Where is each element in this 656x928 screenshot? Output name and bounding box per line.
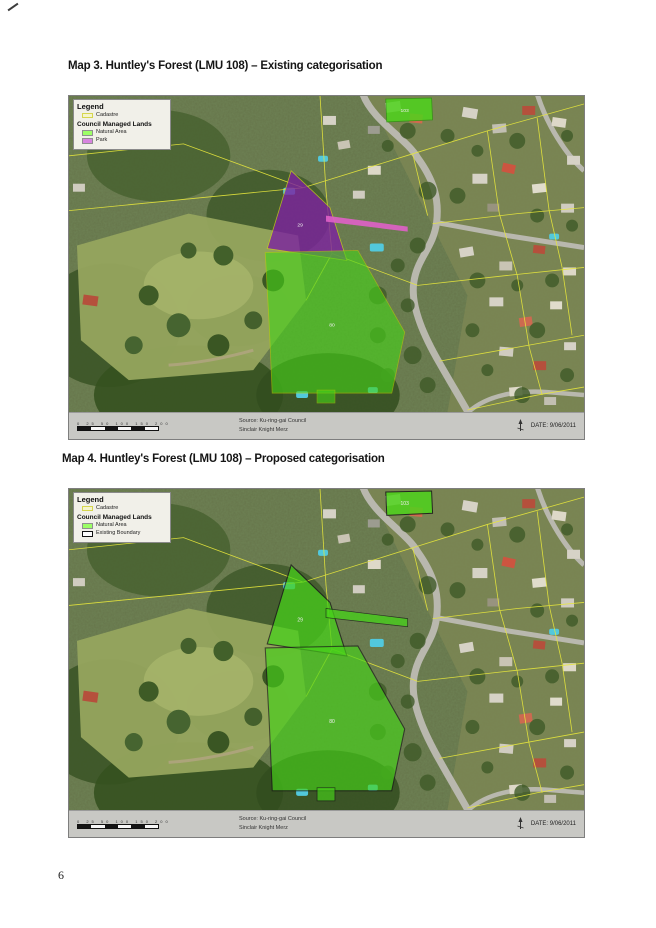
map3-title-number: Map 3. [68, 60, 103, 72]
map4-natural-area-top-parcel [386, 491, 433, 515]
source-line-1: Source: Ku-ring-gai Council [239, 417, 306, 426]
source-attribution: Source: Ku-ring-gai Council Sinclair Kni… [239, 815, 306, 833]
legend-item-cadastre: Cadastre [77, 506, 167, 512]
cadastre-swatch-icon [82, 113, 93, 118]
map4-natural-area-notch [317, 788, 335, 801]
legend-item-park: Park [77, 138, 167, 144]
natural-area-swatch-icon [82, 130, 93, 136]
source-line-1: Source: Ku-ring-gai Council [239, 815, 306, 824]
parcel-label: 80 [329, 719, 335, 725]
legend-title: Legend [77, 495, 167, 504]
legend-title: Legend [77, 102, 167, 111]
map4-figure: 103 29 80 Legend Cadastre Council Manage… [68, 488, 585, 838]
source-line-2: Sinclair Knight Merz [239, 824, 306, 833]
scale-bar-segments [77, 426, 159, 431]
cadastre-swatch-icon [82, 506, 93, 511]
map3-natural-area-top-parcel [386, 98, 433, 122]
map3-legend: Legend Cadastre Council Managed Lands Na… [73, 99, 171, 150]
legend-group-heading: Council Managed Lands [77, 121, 167, 128]
map3-natural-area-notch [317, 390, 335, 403]
source-line-2: Sinclair Knight Merz [239, 426, 306, 435]
legend-group-heading: Council Managed Lands [77, 514, 167, 521]
legend-label: Natural Area [96, 130, 127, 136]
park-swatch-icon [82, 138, 93, 144]
natural-area-swatch-icon [82, 523, 93, 529]
north-arrow-icon [516, 817, 525, 831]
parcel-label: 29 [297, 223, 303, 229]
legend-item-natural-area: Natural Area [77, 523, 167, 529]
parcel-label: 103 [401, 108, 410, 114]
legend-label: Cadastre [96, 506, 118, 512]
map-date: DATE: 9/06/2011 [531, 821, 576, 827]
existing-boundary-swatch-icon [82, 531, 93, 537]
legend-label: Natural Area [96, 523, 127, 529]
scale-tick-labels: 0 25 50 100 150 200 [77, 421, 177, 426]
map3-footer-bar: 0 25 50 100 150 200 Source: Ku-ring-gai … [69, 412, 584, 439]
source-attribution: Source: Ku-ring-gai Council Sinclair Kni… [239, 417, 306, 435]
map3-title: Map 3. Huntley's Forest (LMU 108) – Exis… [68, 60, 382, 72]
map3-title-text: Huntley's Forest (LMU 108) – Existing ca… [103, 60, 383, 72]
scale-tick-labels: 0 25 50 100 150 200 [77, 819, 177, 824]
parcel-label: 29 [297, 618, 303, 624]
map4-title-number: Map 4. [62, 453, 97, 465]
north-arrow-icon [516, 419, 525, 433]
date-block: DATE: 9/06/2011 [516, 413, 576, 439]
parcel-label: 80 [329, 322, 335, 328]
map-date: DATE: 9/06/2011 [531, 423, 576, 429]
legend-label: Existing Boundary [96, 531, 140, 537]
map4-title-text: Huntley's Forest (LMU 108) – Proposed ca… [97, 453, 385, 465]
legend-item-existing-boundary: Existing Boundary [77, 531, 167, 537]
scale-bar: 0 25 50 100 150 200 [77, 819, 177, 829]
legend-item-cadastre: Cadastre [77, 113, 167, 119]
scale-bar-segments [77, 824, 159, 829]
legend-label: Cadastre [96, 113, 118, 119]
scale-bar: 0 25 50 100 150 200 [77, 421, 177, 431]
parcel-label: 103 [401, 501, 410, 507]
legend-label: Park [96, 138, 107, 144]
legend-item-natural-area: Natural Area [77, 130, 167, 136]
scan-corner-mark [8, 3, 19, 12]
map3-figure: 103 29 80 Legend Cadastre Council Manage… [68, 95, 585, 440]
date-block: DATE: 9/06/2011 [516, 811, 576, 837]
map4-legend: Legend Cadastre Council Managed Lands Na… [73, 492, 171, 543]
page-number: 6 [58, 868, 64, 883]
map4-footer-bar: 0 25 50 100 150 200 Source: Ku-ring-gai … [69, 810, 584, 837]
map4-title: Map 4. Huntley's Forest (LMU 108) – Prop… [62, 453, 385, 465]
